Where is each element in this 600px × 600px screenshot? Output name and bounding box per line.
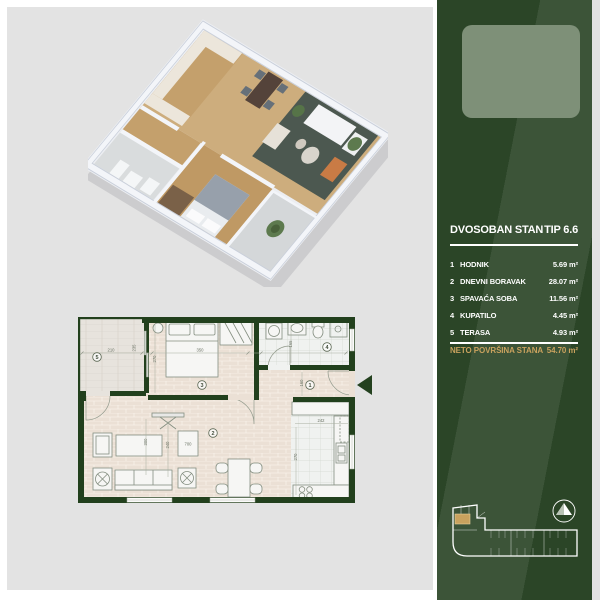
room-label: HODNIK	[460, 260, 553, 269]
terrace-floor	[80, 319, 144, 392]
room-area: 28.07 m²	[549, 277, 578, 286]
room-row: 5 TERASA 4.93 m²	[450, 324, 578, 341]
unit-lines	[491, 530, 566, 556]
toilet-bowl	[313, 326, 323, 338]
iso-apartment	[88, 19, 388, 281]
room-row: 1 HODNIK 5.69 m²	[450, 256, 578, 273]
brochure-page: { "sidebar": { "title": "DVOSOBAN STAN",…	[0, 0, 600, 600]
stool	[153, 323, 163, 333]
room-area: 11.56 m²	[549, 294, 578, 303]
room-row: 4 KUPATILO 4.45 m²	[450, 307, 578, 324]
logo-placeholder	[462, 25, 580, 118]
total-label: NETO POVRŠINA STANA	[450, 346, 543, 355]
dining-chair	[216, 484, 228, 494]
dim-bedroom-d: 270	[152, 355, 157, 363]
dim-terrace-w: 210	[108, 348, 116, 353]
room-area: 4.45 m²	[553, 311, 578, 320]
room-area: 4.93 m²	[553, 328, 578, 337]
dim-hall-w: 160	[299, 379, 304, 387]
room-number: 2	[450, 277, 460, 286]
main-panel: 210 235 350 270 165 160 242 270 300 240 …	[7, 7, 433, 590]
wall-tv	[152, 413, 184, 417]
room-list: 1 HODNIK 5.69 m² 2 DNEVNI BORAVAK 28.07 …	[450, 256, 578, 341]
building-footprint	[447, 498, 585, 570]
dim-living-w: 700	[185, 442, 193, 447]
dining-table	[228, 459, 250, 497]
dining-chair	[250, 484, 262, 494]
dim-living-a: 300	[143, 438, 148, 446]
dim-living-b: 240	[165, 441, 170, 449]
room-label: TERASA	[460, 328, 553, 337]
dim-kitchen-w: 242	[318, 418, 326, 423]
room-label: SPAVAĆA SOBA	[460, 294, 549, 303]
dim-bedroom-w: 350	[197, 348, 205, 353]
room-label: DNEVNI BORAVAK	[460, 277, 549, 286]
total-area: 54.70 m²	[547, 346, 578, 355]
room-label: KUPATILO	[460, 311, 553, 320]
bath-door-opening	[268, 365, 290, 370]
unit-highlight	[455, 514, 470, 524]
dim-terrace-d: 235	[132, 344, 137, 352]
room-number: 5	[450, 328, 460, 337]
title-divider	[450, 244, 578, 246]
right-edge-strip	[592, 0, 600, 600]
room-marker-living: 2	[211, 431, 214, 437]
pillow	[169, 324, 190, 335]
render-3d	[88, 15, 388, 287]
room-marker-bedroom: 3	[200, 383, 203, 389]
dining-chair	[250, 463, 262, 473]
compass-icon	[553, 500, 575, 522]
entrance-opening	[349, 371, 355, 397]
dim-kitchen-d: 270	[293, 453, 298, 461]
unit-title: DVOSOBAN STAN	[450, 224, 543, 236]
pillow	[194, 324, 215, 335]
room-number: 4	[450, 311, 460, 320]
room-number: 3	[450, 294, 460, 303]
entrance-arrow-icon	[357, 375, 372, 395]
sofa-back	[115, 485, 172, 490]
room-area: 5.69 m²	[553, 260, 578, 269]
room-row: 2 DNEVNI BORAVAK 28.07 m²	[450, 273, 578, 290]
floor-plan: 210 235 350 270 165 160 242 270 300 240 …	[78, 317, 372, 507]
dining-chair	[216, 463, 228, 473]
room-marker-hall: 1	[308, 383, 311, 389]
coffee-table	[116, 435, 162, 456]
bedroom-door-opening	[228, 395, 254, 400]
room-marker-terrace: 5	[95, 355, 98, 361]
kitchen-peninsula	[292, 402, 349, 415]
dim-bath-w: 165	[288, 340, 293, 348]
room-row: 3 SPAVAĆA SOBA 11.56 m²	[450, 290, 578, 307]
unit-type: TIP 6.6	[544, 224, 578, 236]
terrace-door-opening	[86, 391, 110, 396]
room-number: 1	[450, 260, 460, 269]
total-row: NETO POVRŠINA STANA 54.70 m²	[450, 346, 578, 355]
sidebar: DVOSOBAN STAN TIP 6.6 1 HODNIK 5.69 m² 2…	[437, 0, 592, 600]
total-divider	[450, 342, 578, 344]
